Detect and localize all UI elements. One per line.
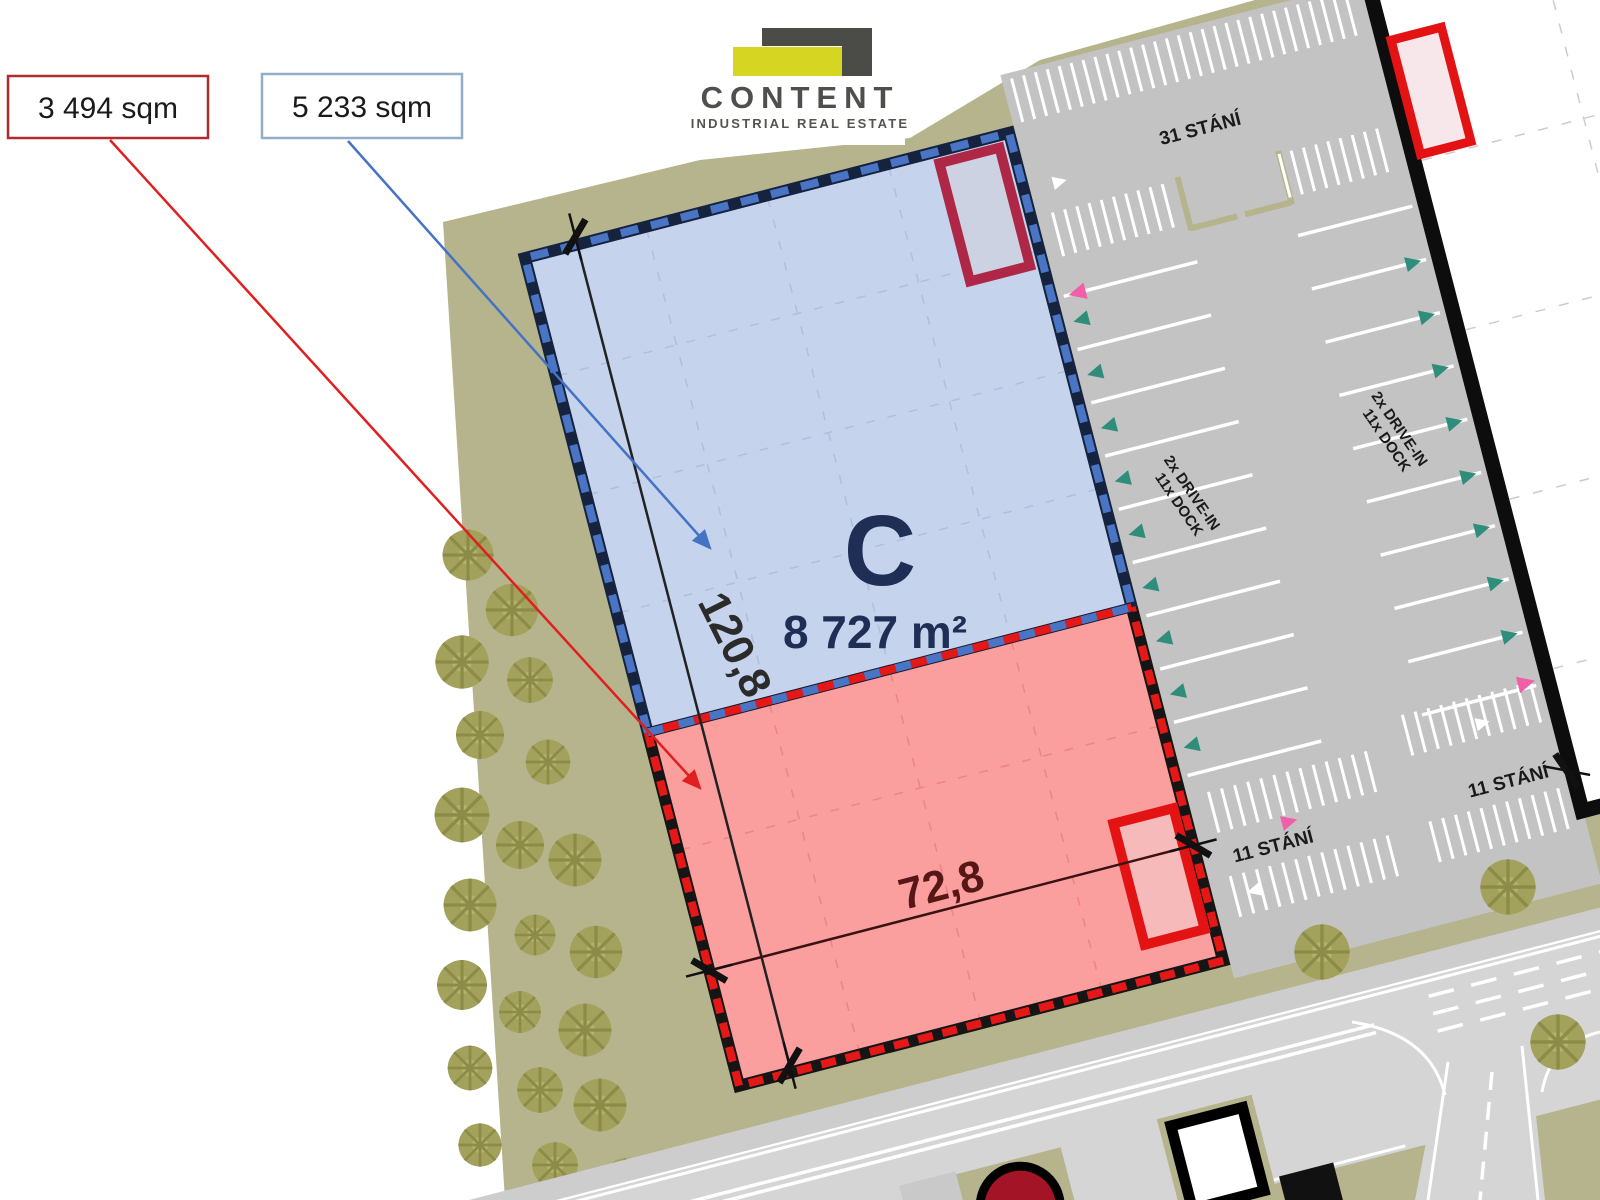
small-building-white [1171, 1107, 1264, 1200]
callout-blue-area: 5 233 sqm [262, 74, 462, 138]
brand-logo: CONTENT INDUSTRIAL REAL ESTATE [691, 0, 910, 145]
site-plan: 120,8 72,8 31 STÁNÍ 11 STÁNÍ 11 STÁNÍ 2x… [0, 0, 1600, 1200]
site-plan-page: { "brand": { "name": "CONTENT", "tagline… [0, 0, 1600, 1200]
callout-blue-area-label: 5 233 sqm [292, 91, 432, 124]
building-c-area-label: 8 727 m² [783, 606, 967, 658]
callout-red-area: 3 494 sqm [8, 76, 208, 138]
brand-tagline: INDUSTRIAL REAL ESTATE [691, 116, 910, 131]
logo-mark-yellow [733, 47, 842, 76]
building-c-label: C [844, 495, 916, 607]
callout-red-area-label: 3 494 sqm [38, 92, 178, 125]
brand-name: CONTENT [701, 80, 900, 115]
